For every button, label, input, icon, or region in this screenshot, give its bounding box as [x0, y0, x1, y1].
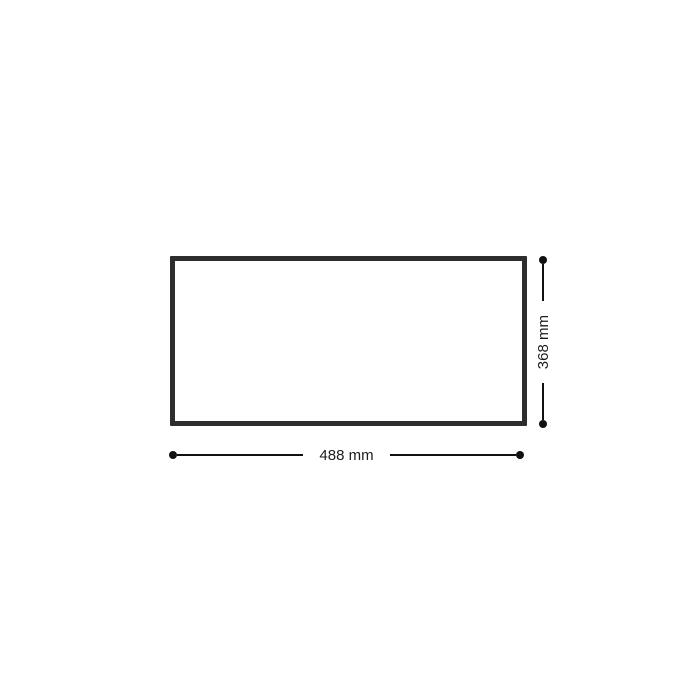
dimension-endpoint-dot — [539, 420, 547, 428]
panel-rectangle — [170, 256, 527, 426]
height-dimension-label: 368 mm — [536, 301, 551, 383]
dimension-endpoint-dot — [169, 451, 177, 459]
width-dimension-label: 488 mm — [303, 448, 389, 463]
width-dimension: 488 mm — [169, 447, 524, 463]
dimension-line-segment — [177, 454, 303, 456]
dimension-endpoint-dot — [539, 256, 547, 264]
dimension-line-segment — [542, 383, 544, 420]
height-dimension: 368 mm — [535, 256, 551, 428]
dimension-line-segment — [542, 264, 544, 301]
dimension-line-segment — [390, 454, 516, 456]
dimension-endpoint-dot — [516, 451, 524, 459]
dimension-diagram: 488 mm 368 mm — [0, 0, 700, 700]
